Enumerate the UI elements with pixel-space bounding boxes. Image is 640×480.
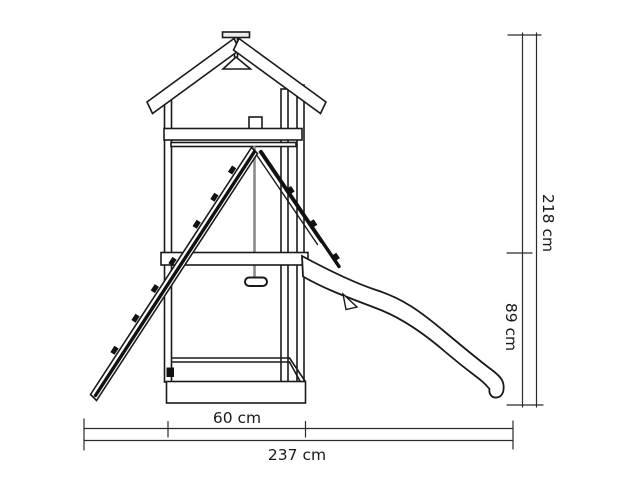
swing-beam	[164, 129, 302, 141]
left-roof-board	[147, 39, 240, 114]
swing-seat	[245, 278, 267, 287]
roof-finial-cap	[223, 32, 250, 38]
platform-height-label: 89 cm	[502, 303, 520, 351]
dimension-drawing: 218 cm 89 cm 60 cm 237 cm	[0, 0, 640, 480]
right-roof-board	[234, 39, 327, 114]
handrail-grips	[287, 186, 340, 261]
top-rail	[171, 143, 296, 147]
base-bracket	[167, 368, 175, 378]
total-height-label: 218 cm	[539, 194, 557, 252]
total-length-label: 237 cm	[268, 446, 326, 464]
base-frame	[167, 382, 306, 404]
swing-hanger-block	[249, 117, 262, 129]
ramp-board-shadow	[96, 152, 255, 396]
slide	[302, 256, 504, 398]
tower-width-label: 60 cm	[213, 409, 261, 427]
